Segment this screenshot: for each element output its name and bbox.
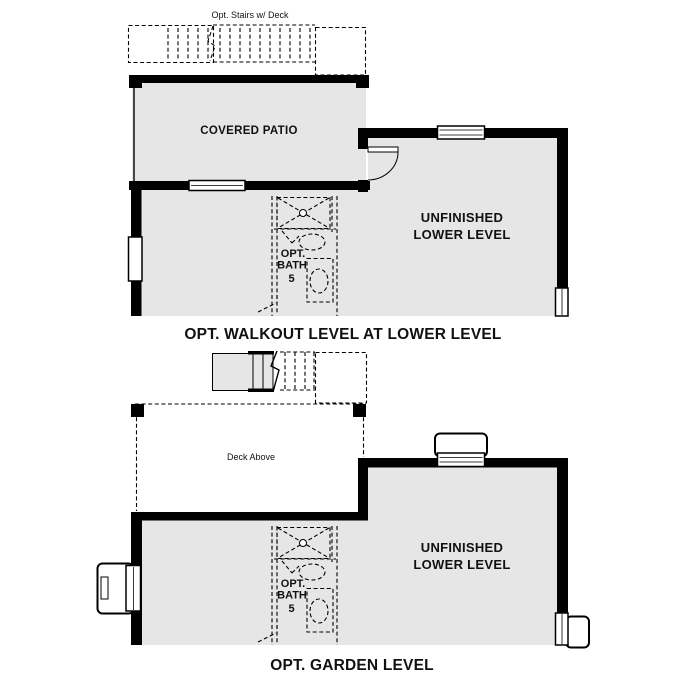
stair-treads-dashed (285, 352, 314, 390)
garden-plan-title: OPT. GARDEN LEVEL (270, 657, 434, 674)
unfinished-label-line1: UNFINISHED (421, 210, 503, 225)
stair-landing-right-2 (316, 353, 367, 404)
stair-top-stringer (248, 351, 274, 355)
top-wall-window-2 (438, 453, 485, 467)
window-well-right (566, 617, 589, 648)
patio-corner-post-right (356, 75, 369, 88)
deck-above-label: Deck Above (227, 452, 275, 462)
opt-stairs-deck-outline (129, 25, 366, 75)
bath-shower-drain-2 (300, 540, 307, 547)
door-panel (368, 147, 398, 152)
deck-post-right (353, 404, 366, 417)
garden-stairs (213, 351, 367, 403)
patio-corner-post-left (129, 75, 142, 88)
stair-treads-left (168, 28, 208, 60)
unfinished-label-2-line2: LOWER LEVEL (413, 557, 510, 572)
stairs-deck-label: Opt. Stairs w/ Deck (211, 10, 289, 20)
bath-label-line1: OPT. (281, 248, 305, 260)
bath-label-line3: 5 (288, 273, 294, 285)
front-wall (131, 512, 368, 521)
covered-patio-label: COVERED PATIO (200, 125, 297, 137)
bath-label-line2: BATH (277, 260, 307, 272)
patio-bottom-wall (129, 181, 370, 190)
bath-label-2-line3: 5 (288, 603, 294, 615)
bath-label-2-line1: OPT. (281, 578, 305, 590)
floorplan-canvas: Opt. Stairs w/ Deck COVERED PATIO UNFINI… (0, 0, 687, 687)
step-wall (358, 458, 368, 520)
room-right-wall-2 (557, 458, 568, 613)
floorplan-drawing: Opt. Stairs w/ Deck COVERED PATIO UNFINI… (0, 0, 687, 687)
stair-landing (213, 354, 274, 391)
window-well-left-ladder (101, 577, 108, 599)
room-right-wall (557, 128, 568, 289)
stair-run-edges-2 (280, 352, 315, 390)
walkout-plan-title: OPT. WALKOUT LEVEL AT LOWER LEVEL (184, 326, 501, 343)
walkout-plan: Opt. Stairs w/ Deck COVERED PATIO UNFINI… (129, 10, 569, 343)
door-jamb-bottom (358, 180, 368, 192)
deck-post-left (131, 404, 144, 417)
left-wall-window (129, 237, 143, 281)
stair-landing-left (129, 26, 214, 63)
garden-plan: Deck Above UNFINISHED LOWER LEVEL OPT. B… (98, 351, 590, 674)
lower-level-left-floor (141, 190, 558, 316)
bath-shower-drain (300, 210, 307, 217)
unfinished-label-2-line1: UNFINISHED (421, 540, 503, 555)
patio-top-wall (129, 75, 369, 83)
stair-landing-right (316, 28, 366, 76)
stair-bottom-stringer (248, 389, 274, 393)
bath-label-2-line2: BATH (277, 590, 307, 602)
lower-level-left-floor-2 (142, 520, 558, 645)
door-jamb-top (358, 136, 368, 149)
top-wall-window (438, 126, 485, 139)
unfinished-label-line2: LOWER LEVEL (413, 227, 510, 242)
stair-treads-right (220, 28, 310, 61)
